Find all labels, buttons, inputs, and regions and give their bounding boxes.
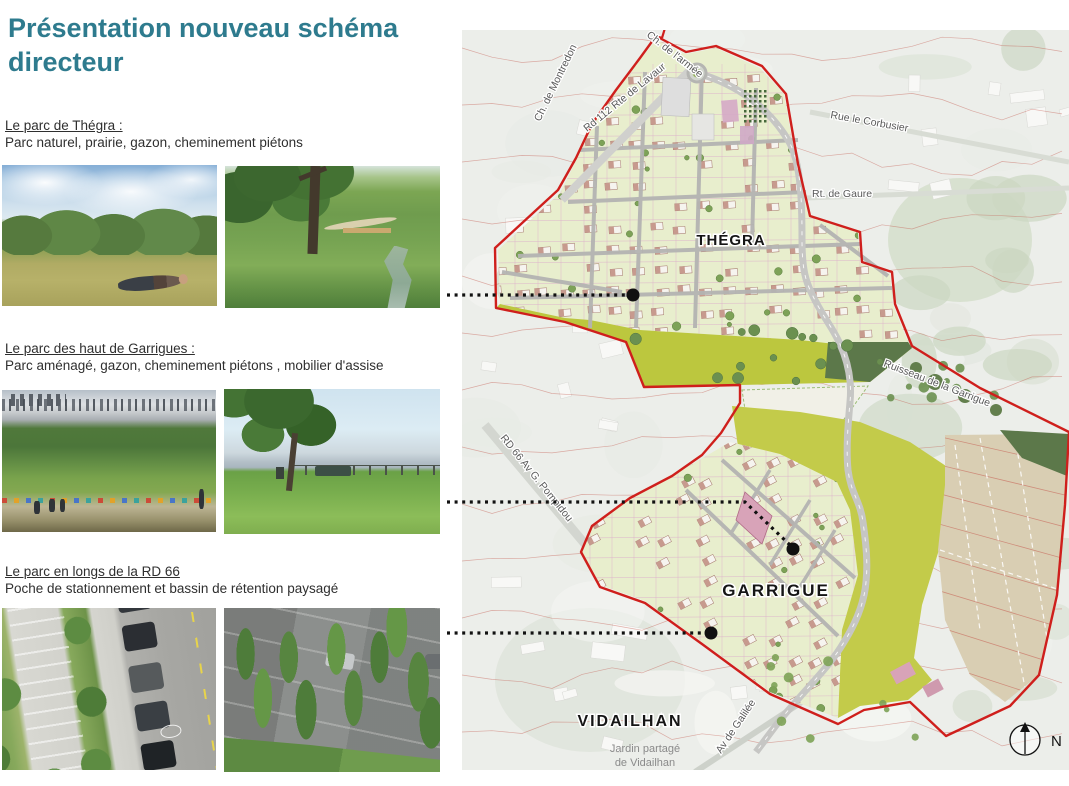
person (49, 499, 55, 512)
photo-rd66-street-aerial (2, 608, 216, 770)
leader-dot-thegra (627, 289, 640, 302)
photo-garrigues-viewpoint (224, 389, 440, 534)
city-skyline (2, 399, 216, 412)
section-heading: Le parc de Thégra : (5, 118, 455, 133)
section-description: Parc naturel, prairie, gazon, cheminemen… (5, 135, 455, 150)
label-garrigue: GARRIGUE (722, 581, 830, 600)
label-vidailhan: VIDAILHAN (577, 713, 682, 730)
photo-thegra-park-stream (225, 166, 440, 308)
map-canvas: THÉGRA GARRIGUE VIDAILHAN Jardin partagé… (440, 30, 1069, 770)
parked-car (128, 662, 165, 694)
section-description: Poche de stationnement et bassin de réte… (5, 581, 455, 596)
section-parc-garrigues: Le parc des haut de Garrigues : Parc amé… (5, 341, 455, 373)
label-north: N (1051, 733, 1062, 750)
section-description: Parc aménagé, gazon, cheminement piétons… (5, 358, 455, 373)
label-thegra: THÉGRA (696, 232, 765, 249)
section-parc-thegra: Le parc de Thégra : Parc naturel, prairi… (5, 118, 455, 150)
section-heading: Le parc en longs de la RD 66 (5, 564, 455, 579)
photo-thegra-meadow (2, 165, 217, 306)
tree-canopy (224, 389, 375, 473)
slide: Présentation nouveau schéma directeur Le… (0, 0, 1069, 786)
woods-blob (990, 404, 1002, 416)
label-jardin-line2: de Vidailhan (615, 757, 675, 769)
label-road-gaure: Rt. de Gaure (812, 188, 872, 200)
page-title: Présentation nouveau schéma directeur (8, 12, 448, 80)
bushes (2, 207, 217, 255)
street-bands (2, 608, 216, 770)
section-heading: Le parc des haut de Garrigues : (5, 341, 455, 356)
person (199, 489, 205, 509)
leader-dot-garrigue (787, 543, 800, 556)
master-plan-map: THÉGRA GARRIGUE VIDAILHAN Jardin partagé… (440, 30, 1069, 770)
street-trees (2, 608, 216, 770)
label-jardin-line1: Jardin partagé (610, 743, 680, 755)
person-lying (118, 274, 183, 294)
person (60, 499, 66, 512)
parked-car (140, 740, 177, 770)
leader-dot-rd66 (705, 627, 718, 640)
section-parc-rd66: Le parc en longs de la RD 66 Poche de st… (5, 564, 455, 596)
photo-rd66-parking-aerial (224, 608, 440, 772)
person (34, 501, 40, 514)
photo-garrigues-panorama (2, 390, 216, 532)
